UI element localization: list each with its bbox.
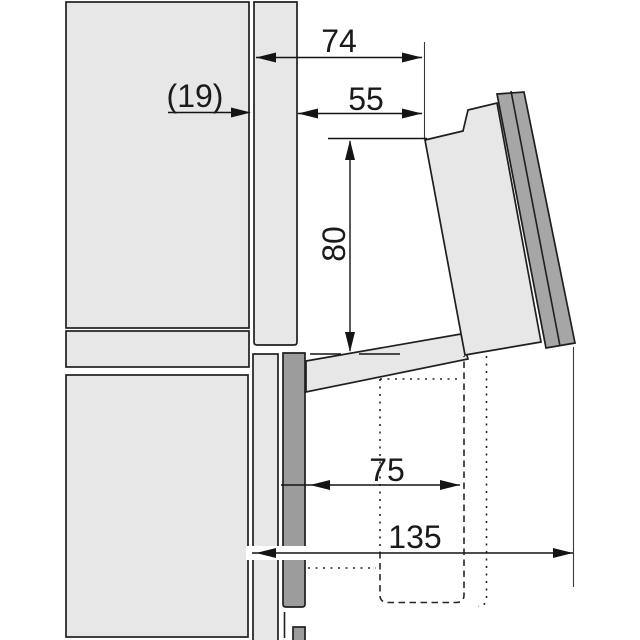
- arrowhead-left-75: [310, 480, 330, 490]
- lower-front-panel: [253, 354, 278, 640]
- dim-label-135: 135: [388, 519, 441, 555]
- dim-label-80: 80: [316, 226, 352, 262]
- arrowhead-right-75: [440, 480, 460, 490]
- diagram-canvas: 74 (19) 55 80 75 135: [0, 0, 640, 640]
- dim-label-75: 75: [369, 452, 405, 488]
- hinge-flap: [306, 334, 468, 392]
- arrowhead-left-55: [298, 109, 318, 119]
- dim-label-55: 55: [348, 81, 384, 117]
- closed-door-back-hidden-line: [478, 356, 487, 606]
- installation-diagram: 74 (19) 55 80 75 135: [0, 0, 640, 640]
- lower-cabinet-panel: [66, 375, 248, 637]
- arrowhead-up-80: [345, 140, 355, 160]
- arrowhead-right-55: [402, 109, 422, 119]
- tilting-door-assembly: [283, 91, 575, 640]
- arrowhead-down-80: [345, 332, 355, 352]
- dimension-80: 80: [310, 139, 427, 355]
- cabinet-shelf-panel: [66, 331, 249, 367]
- dim-label-74: 74: [321, 23, 357, 59]
- dimension-75: 75: [281, 452, 460, 490]
- appliance-frame-panel: [283, 353, 305, 607]
- upper-cabinet-panel: [66, 2, 249, 328]
- dimension-55: 55: [298, 81, 422, 119]
- arrowhead-right-74: [402, 53, 422, 63]
- arrowhead-right-135: [553, 548, 573, 558]
- mounting-foot: [293, 627, 305, 640]
- dim-label-19: (19): [167, 78, 224, 114]
